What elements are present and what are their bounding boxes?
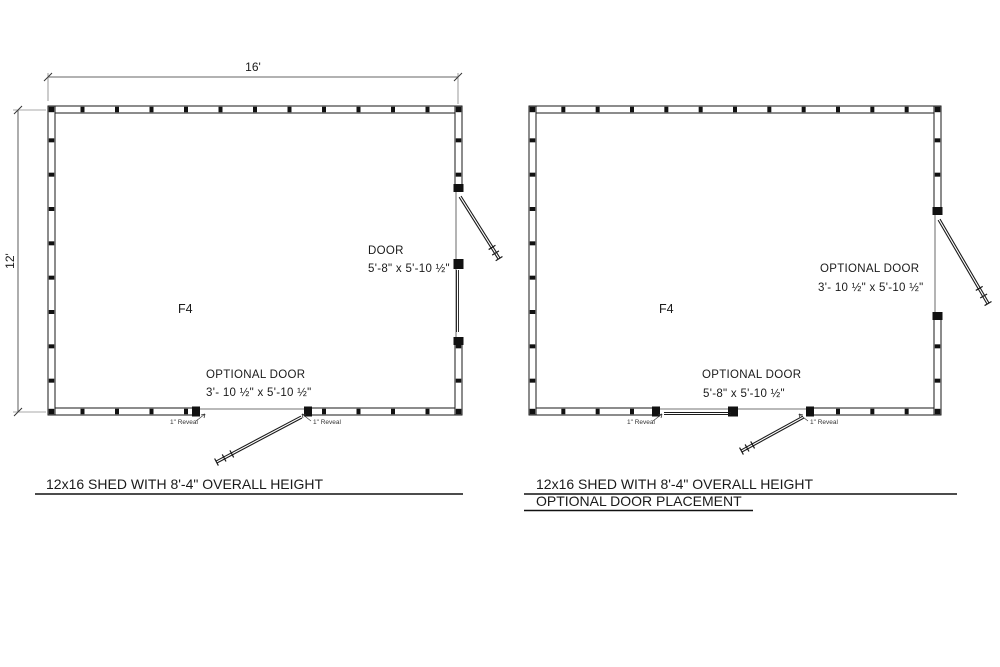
right-plan-floor-label: F4 (659, 302, 674, 316)
stud-mark (530, 379, 535, 383)
stud-mark (322, 409, 326, 414)
stud-mark (530, 344, 535, 348)
left-plan-width-dimension: 16' (245, 60, 261, 74)
stud-mark (836, 409, 840, 414)
stud-mark (391, 107, 395, 112)
stud-mark (530, 207, 535, 211)
door-jamb (454, 337, 464, 345)
right-plan-optional-door-side-label: OPTIONAL DOOR (820, 263, 919, 275)
stud-mark (530, 276, 535, 280)
stud-mark (935, 173, 940, 177)
stud-mark (596, 409, 600, 414)
stud-mark (935, 379, 940, 383)
stud-mark (322, 107, 326, 112)
left-plan-reveal-left-label: 1" Reveal (170, 419, 199, 426)
corner-post (935, 107, 941, 113)
left-plan-reveal-right-label: 1" Reveal (313, 419, 342, 426)
stud-mark (184, 409, 188, 414)
stud-mark (49, 138, 54, 142)
stud-mark (150, 409, 154, 414)
stud-mark (733, 107, 737, 112)
stud-mark (426, 409, 430, 414)
stud-mark (836, 107, 840, 112)
stud-mark (81, 107, 85, 112)
door-jamb (806, 407, 814, 417)
page: 16' 12' F4 DOOR 5'-8" x 5'-10 ½" OPTIONA… (0, 0, 1000, 667)
stud-mark (699, 107, 703, 112)
stud-mark (150, 107, 154, 112)
left-plan-optional-door-label: OPTIONAL DOOR (206, 369, 305, 381)
stud-mark (81, 409, 85, 414)
right-plan-caption-line1: 12x16 SHED WITH 8'-4" OVERALL HEIGHT (536, 476, 814, 492)
door-jamb (454, 184, 464, 192)
stud-mark (630, 107, 634, 112)
stud-mark (357, 409, 361, 414)
floor-plans-drawing: 16' 12' F4 DOOR 5'-8" x 5'-10 ½" OPTIONA… (0, 0, 1000, 560)
stud-mark (935, 138, 940, 142)
stud-mark (456, 138, 461, 142)
corner-post (530, 107, 536, 113)
stud-mark (288, 107, 292, 112)
corner-post (935, 409, 941, 415)
door-opening (200, 407, 304, 416)
stud-mark (530, 173, 535, 177)
stud-mark (49, 173, 54, 177)
stud-mark (49, 379, 54, 383)
plan-line (940, 219, 989, 303)
plan-line (742, 418, 804, 452)
left-plan-door-label: DOOR (368, 245, 404, 257)
wall-left (48, 106, 55, 415)
door-jamb (192, 407, 200, 417)
stud-mark (253, 107, 257, 112)
stud-mark (530, 241, 535, 245)
right-plan-caption-line2: OPTIONAL DOOR PLACEMENT (536, 493, 742, 509)
left-plan-optional-door-size: 3'- 10 ½" x 5'-10 ½" (206, 387, 312, 399)
stud-mark (456, 173, 461, 177)
door-jamb (728, 407, 738, 417)
stud-mark (802, 107, 806, 112)
door-jamb (933, 207, 943, 215)
plan-line (459, 197, 498, 259)
right-plan-optional-door-side-size: 3'- 10 ½" x 5'-10 ½" (818, 282, 924, 294)
right-plan-optional-door-bottom-label: OPTIONAL DOOR (702, 369, 801, 381)
corner-post (49, 409, 55, 415)
stud-mark (530, 310, 535, 314)
stud-mark (49, 241, 54, 245)
stud-mark (391, 409, 395, 414)
stud-mark (767, 107, 771, 112)
plan-line (938, 220, 987, 304)
stud-mark (870, 107, 874, 112)
door-opening (933, 215, 942, 312)
left-plan-floor-label: F4 (178, 302, 193, 316)
stud-mark (426, 107, 430, 112)
plan-line (461, 196, 500, 258)
plan-line (216, 416, 301, 461)
stud-mark (905, 409, 909, 414)
stud-mark (357, 107, 361, 112)
wall-left (529, 106, 536, 415)
door-jamb (454, 259, 464, 269)
right-plan-reveal-left-label: 1" Reveal (627, 419, 656, 426)
footer-banner: Build Your Own Backyard Shed! iCreatable… (0, 600, 1000, 667)
stud-mark (456, 379, 461, 383)
stud-mark (49, 344, 54, 348)
stud-mark (905, 107, 909, 112)
stud-mark (664, 107, 668, 112)
plan-line (217, 418, 302, 463)
stud-mark (530, 138, 535, 142)
stud-mark (561, 107, 565, 112)
stud-mark (219, 107, 223, 112)
plan-labels: 16' 12' F4 DOOR 5'-8" x 5'-10 ½" OPTIONA… (3, 60, 924, 509)
stud-mark (630, 409, 634, 414)
left-plan-height-dimension: 12' (3, 253, 17, 269)
stud-mark (49, 207, 54, 211)
stud-mark (49, 310, 54, 314)
door-jamb (933, 312, 943, 320)
stud-mark (935, 344, 940, 348)
stud-mark (561, 409, 565, 414)
stud-mark (870, 409, 874, 414)
right-plan-optional-door-bottom-size: 5'-8" x 5'-10 ½" (703, 388, 785, 400)
stud-mark (49, 276, 54, 280)
corner-post (530, 409, 536, 415)
stud-mark (184, 107, 188, 112)
corner-post (49, 107, 55, 113)
left-plan-door-size: 5'-8" x 5'-10 ½" (368, 263, 450, 275)
right-plan-reveal-right-label: 1" Reveal (810, 419, 839, 426)
left-plan-caption: 12x16 SHED WITH 8'-4" OVERALL HEIGHT (46, 476, 324, 492)
stud-mark (115, 107, 119, 112)
corner-post (456, 409, 462, 415)
stud-mark (596, 107, 600, 112)
corner-post (456, 107, 462, 113)
plan-line (741, 416, 803, 450)
stud-mark (115, 409, 119, 414)
